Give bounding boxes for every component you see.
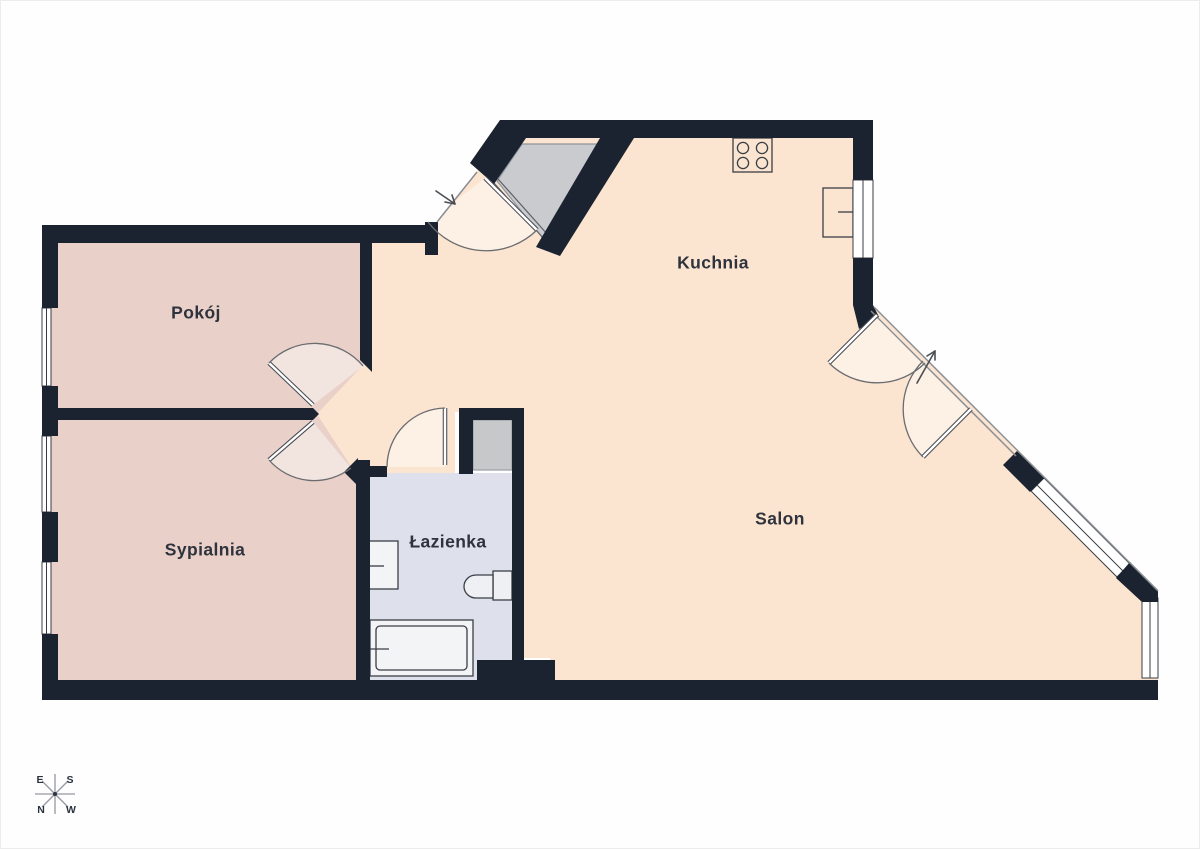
entry-arrow-icon	[436, 191, 455, 204]
sink-icon	[368, 541, 398, 589]
compass-north-label: N	[37, 804, 45, 816]
pokoj-right-wall	[360, 243, 372, 360]
room-label-lazienka: Łazienka	[409, 532, 486, 553]
left-wall-segment-3	[42, 512, 58, 562]
toilet-icon	[464, 571, 512, 600]
room-label-salon: Salon	[755, 509, 805, 530]
right-wall-upper	[853, 120, 873, 180]
bathtub-icon	[370, 620, 473, 676]
room-label-kuchnia: Kuchnia	[677, 253, 749, 274]
floors	[50, 125, 1158, 690]
bottom-wall	[42, 680, 1158, 700]
pokoj-window	[42, 308, 58, 386]
ventilation-shaft	[473, 420, 512, 470]
room-label-pokoj: Pokój	[171, 303, 221, 324]
lazienka-left-wall	[356, 460, 370, 680]
sypialnia-window-2	[42, 562, 58, 634]
sypialnia-window-1	[42, 436, 58, 512]
left-wall-segment-1	[42, 225, 58, 308]
radiator-icon	[823, 188, 853, 237]
stove-icon	[733, 138, 772, 172]
kuchnia-window	[853, 180, 873, 258]
right-wall-lower	[853, 258, 873, 305]
room-label-sypialnia: Sypialnia	[165, 540, 245, 561]
salon-right-window	[1142, 598, 1158, 678]
floorplan-page: Pokój Sypialnia Łazienka Kuchnia Salon E…	[0, 0, 1200, 849]
floorplan-drawing	[0, 0, 1200, 849]
kuchnia-top-wall	[500, 120, 853, 138]
lazienka-right-wall	[512, 408, 524, 660]
pokoj-sypialnia-divider-wall	[42, 408, 313, 420]
pokoj-top-wall	[42, 225, 438, 243]
lazienka-top-wall	[356, 466, 387, 477]
compass-east-label: E	[36, 774, 43, 786]
compass-west-label: W	[66, 804, 76, 816]
compass-south-label: S	[66, 774, 73, 786]
